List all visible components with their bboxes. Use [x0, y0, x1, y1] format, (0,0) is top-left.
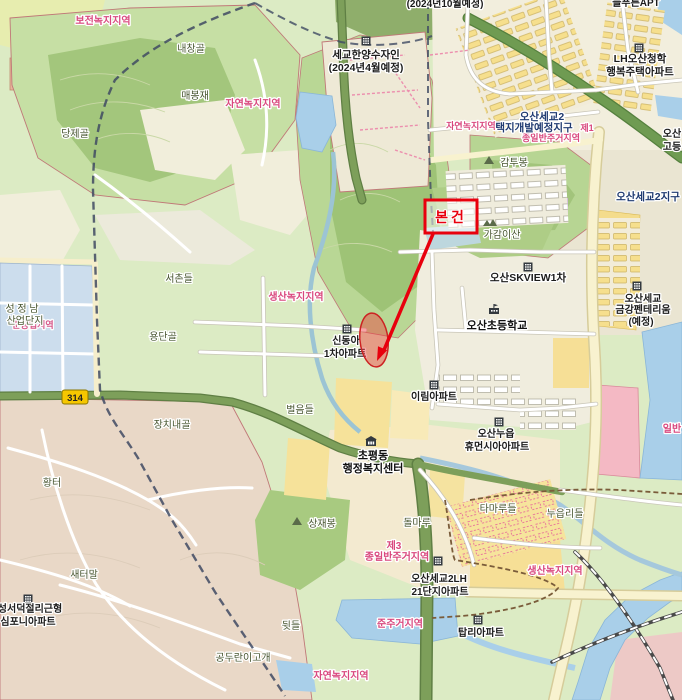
- label-ilban-right: 일반: [663, 422, 682, 435]
- label-geumgang: 오산세교: [625, 292, 662, 305]
- label-nueupdeul: 누읍리들: [547, 508, 584, 520]
- label-symphony: 성서덕절리근형: [0, 602, 62, 615]
- label-segyo2lh: 21단지아파트: [411, 585, 468, 598]
- zone-pink: [596, 385, 640, 478]
- label-chopyeong: 행정복지센터: [343, 461, 404, 475]
- label-segyo2lh: 오산세교2LH: [411, 572, 467, 585]
- label-geumgang: 금강펜테리움: [615, 303, 670, 316]
- route-badge-314: 314: [62, 390, 88, 404]
- label-osan-high: 오산: [663, 127, 682, 140]
- label-junjugeo: 준주거지역: [377, 617, 423, 630]
- label-osan-high: 고등: [663, 141, 681, 153]
- label-top-apt: 늘푸른APT: [612, 0, 660, 9]
- apartment-cluster: [520, 396, 576, 430]
- zone-yellow: [553, 338, 589, 388]
- label-gagamisan: 가감이산: [484, 229, 521, 241]
- apartment-icon: [24, 595, 33, 604]
- route-badge-number: 314: [67, 393, 84, 404]
- label-seongjeongnam: 성 정 남: [5, 303, 38, 315]
- apartment-icon: [430, 381, 439, 390]
- label-geumgang: (예정): [628, 315, 653, 328]
- label-jayeon-green-top: 자연녹지지역: [225, 97, 280, 110]
- label-top-due: (2024년10월예정): [407, 0, 484, 10]
- apartment-icon: [434, 557, 443, 566]
- map-screenshot: 314 보전녹지지역 자연녹지지역 자연녹지지역 제1 종일반주거지역 생산녹지…: [0, 0, 682, 700]
- label-dolmaru: 돌마루: [403, 517, 431, 529]
- label-osan-elementary: 오산초등학교: [467, 318, 528, 332]
- label-bojeon-green: 보전녹지지역: [75, 14, 130, 27]
- industrial-edge-road: [0, 260, 95, 262]
- label-lh-cheonghak: 행복주택아파트: [606, 65, 674, 78]
- label-segyo2-district: 오산세교2지구: [616, 190, 680, 203]
- label-nueup-humansia: 휴먼시아아파트: [465, 440, 529, 453]
- label-shindonga: 1차아파트: [324, 347, 366, 360]
- label-je1-zone: 제1: [580, 122, 593, 133]
- label-je3-zone: 제3: [387, 539, 402, 552]
- apartment-icon: [633, 282, 642, 291]
- label-segyo-hanyang: (2024년4월예정): [329, 61, 404, 74]
- label-segyo-hanyang: 세교한양수자인: [332, 48, 400, 61]
- apartment-icon: [362, 37, 371, 46]
- label-tapri: 탑리아파트: [458, 626, 504, 639]
- label-seongjeongnam: 산업단지: [7, 314, 44, 327]
- label-gonduranigogae: 공두란이고개: [215, 652, 270, 664]
- label-shindonga: 신동아: [332, 334, 360, 347]
- label-seochondeul: 서촌들: [165, 273, 193, 285]
- apartment-icon: [635, 44, 644, 53]
- label-chopyeong: 초평동: [358, 448, 388, 462]
- label-maebongjae: 매봉재: [181, 90, 209, 102]
- label-taekji-district: 택지개발예정지구: [495, 121, 573, 134]
- label-sangjaebong: 상재봉: [308, 518, 336, 530]
- pond: [276, 660, 316, 692]
- label-dangjegol: 당제골: [61, 128, 89, 140]
- map-canvas[interactable]: 314 보전녹지지역 자연녹지지역 자연녹지지역 제1 종일반주거지역 생산녹지…: [0, 0, 682, 700]
- label-beoreumdeul: 벌음들: [286, 404, 314, 416]
- label-skview: 오산SKVIEW1차: [490, 271, 567, 284]
- label-yongdangol: 용단골: [149, 331, 177, 343]
- apartment-icon: [524, 263, 533, 272]
- label-irim: 이림아파트: [411, 390, 457, 403]
- zone-yellow: [284, 438, 330, 500]
- label-tamarudeul: 타마루들: [480, 503, 517, 515]
- label-je3-zone: 종일반주거지역: [365, 550, 429, 563]
- label-saengsan-green-right: 생산녹지지역: [527, 564, 582, 577]
- label-jangchinaegol: 장치내골: [154, 419, 191, 431]
- subject-callout-label: 본건: [435, 209, 467, 225]
- label-jayeon-green-bottom: 자연녹지지역: [313, 669, 368, 682]
- label-saeteomal: 새터말: [70, 569, 98, 581]
- label-symphony: 심포니아파트: [0, 615, 55, 628]
- label-hwangteo: 황터: [43, 477, 61, 489]
- label-lh-cheonghak: LH오산청학: [614, 52, 667, 65]
- apartment-icon: [474, 616, 483, 625]
- apartment-icon: [343, 325, 352, 334]
- label-dwitdeul: 뒷들: [282, 619, 300, 632]
- label-saengsan-green-mid: 생산녹지지역: [268, 290, 323, 303]
- label-jayeon-green-mid: 자연녹지지역: [446, 120, 496, 131]
- label-naechanggol: 내창골: [177, 43, 205, 55]
- apartment-icon: [495, 418, 504, 427]
- label-nueup-humansia: 오산누읍: [478, 427, 515, 440]
- label-gamtubong: 감투봉: [500, 157, 528, 169]
- arterial-road: [468, 592, 682, 596]
